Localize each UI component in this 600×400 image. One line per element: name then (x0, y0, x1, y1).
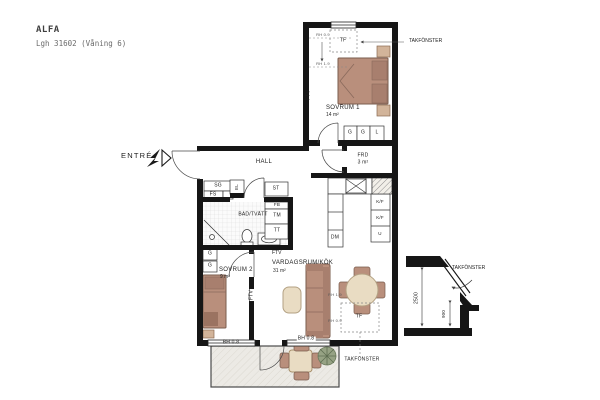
wall-segment (197, 340, 208, 346)
plan-subtitle: Lgh 31602 (Våning 6) (36, 39, 126, 48)
roof-slab (406, 256, 449, 267)
annotation-takfonster-top: TAKFÖNSTER (409, 39, 442, 44)
fixture-label-l: L (376, 131, 379, 136)
room-label-bad-tvatt: BAD/TVÄTT (238, 213, 267, 218)
toilet (242, 230, 252, 243)
storage-door-swing (322, 150, 344, 172)
entrance-label: ENTRÉ (121, 152, 152, 160)
pillow (372, 84, 387, 103)
fixture-label-el: EL (235, 184, 240, 190)
sovrum1-furniture (338, 46, 390, 141)
nightstand (203, 330, 214, 338)
room-label-sovrum1: SOVRUM 1 (326, 105, 360, 111)
bathroom-door-swing (244, 178, 264, 198)
annotation-rh-sovrum1-upper: RH 0.9 (315, 33, 331, 37)
wall-segment (282, 340, 287, 346)
annotation-rh-sovrum1-lower: RH 1.9 (315, 62, 331, 66)
plan-title: ALFA (36, 25, 60, 35)
dimension-900: 900 (442, 310, 447, 318)
sovrum2-furniture (203, 249, 226, 338)
fixture-label-g3: G (348, 131, 352, 136)
sovrum1-door-swing (318, 123, 338, 143)
plant (318, 347, 336, 365)
wall-segment (338, 140, 398, 146)
room-area-sovrum1: 14 m² (326, 113, 339, 118)
wall-segment (288, 197, 293, 250)
room-label-forrad: FRD (358, 154, 369, 159)
wall-segment (197, 146, 309, 151)
room-label-hall: HALL (256, 159, 272, 165)
wall-segment (203, 197, 230, 202)
nightstand (377, 105, 390, 116)
room-area-vardagsrum: 31 m² (273, 269, 286, 274)
fixture-label-sg: SG (214, 184, 222, 189)
annotation-tf-living: TF (356, 315, 363, 320)
fixture-label-tm: TM (273, 214, 281, 219)
wall-segment (255, 340, 260, 346)
balcony-chair (294, 372, 309, 380)
wall-segment (311, 173, 398, 178)
fixture-label-kf-upper: K/F (376, 200, 384, 205)
dining-table (346, 274, 378, 306)
room-area-forrad: 3 m² (358, 161, 369, 166)
nightstand (377, 46, 390, 57)
knee-wall (460, 305, 469, 330)
wall-segment (356, 22, 398, 28)
wall-segment (197, 179, 203, 345)
fixture-label-fb: FB (274, 203, 280, 208)
blanket (204, 312, 218, 326)
annotation-tf-sovrum1: TF (340, 39, 347, 44)
fixture-label-g1: G (208, 252, 212, 257)
annotation-ftv-wall: FTV (250, 289, 255, 301)
wall-segment (392, 22, 398, 346)
annotation-takfonster-bottom: TAKFÖNSTER (344, 358, 379, 363)
living-room-furniture (283, 264, 385, 338)
fixture-label-dm: DM (331, 236, 339, 241)
skylight-window (331, 22, 356, 28)
sofa-back (323, 267, 330, 335)
fixture-label-kf-lower: K/F (376, 216, 384, 221)
pillow (372, 61, 387, 80)
dimension-2500: 2500 (415, 292, 420, 304)
wall-segment (197, 146, 203, 151)
room-label-sovrum2: SOVRUM 2 (219, 267, 253, 273)
stove (346, 179, 366, 193)
fixture-label-tt: TT (274, 229, 281, 234)
room-area-sovrum2: 9 m² (220, 275, 230, 280)
annotation-ftv-sovrum1: FTV (307, 90, 312, 100)
entrance-door-swing (172, 151, 200, 179)
fixture-label-fs: FS (210, 193, 217, 198)
wall-segment (230, 193, 244, 198)
annotation-rh-living-lower: RH 0.9 (328, 319, 342, 323)
wall-segment (303, 22, 309, 146)
floor-slab (404, 328, 472, 336)
annotation-bh-living: BH 0.8 (297, 337, 316, 342)
balcony-table (289, 350, 312, 372)
coffee-table (283, 287, 301, 313)
wall-segment (303, 140, 320, 146)
room-label-vardagsrum: VARDAGSRUM/KÖK (272, 260, 333, 266)
shaft (372, 178, 392, 194)
wall-segment (330, 340, 398, 346)
fixture-label-ugn: U (378, 232, 381, 237)
annotation-ftv-living: FTV (272, 251, 281, 256)
fixture-label-st: ST (273, 187, 280, 192)
annotation-bh-sovrum2: BH 0.8 (223, 341, 240, 346)
annotation-rh-living-upper: RH 1.9 (328, 293, 342, 297)
annotation-takfonster-section: TAKFÖNSTER (452, 266, 485, 271)
floor-plan-canvas: ALFA Lgh 31602 (Våning 6) ENTRÉ HALL SOV… (0, 0, 600, 400)
sovrum2-door-swing (229, 252, 254, 277)
fixture-label-g4: G (361, 131, 365, 136)
balcony-chair (280, 353, 289, 368)
fixture-label-g2: G (208, 264, 212, 269)
wall-segment (249, 277, 254, 340)
